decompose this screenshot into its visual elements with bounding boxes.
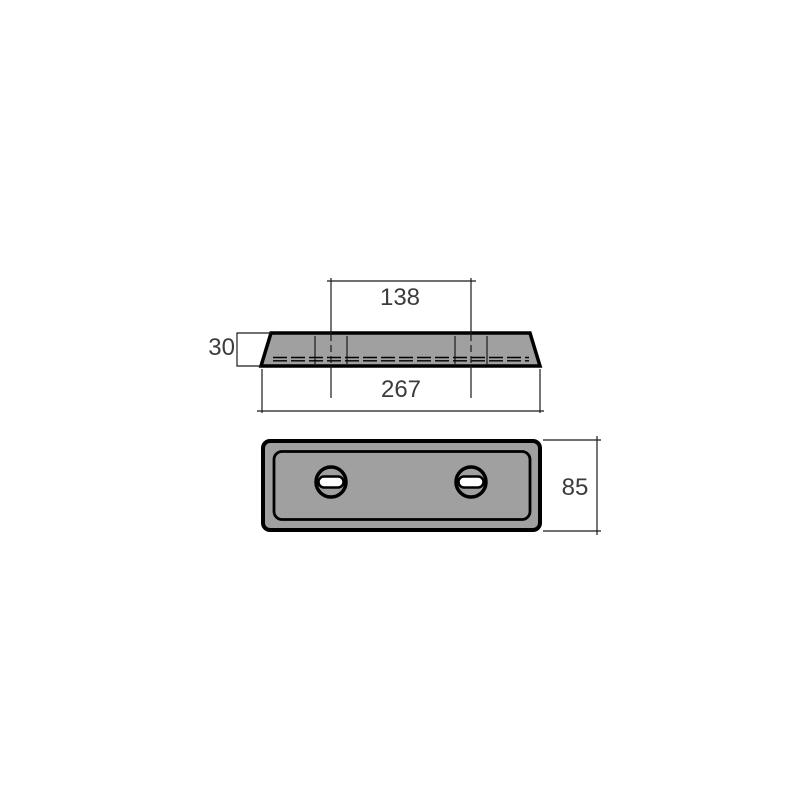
- mounting-slot-right: [459, 477, 484, 488]
- mounting-slot-left: [319, 477, 344, 488]
- drawing-canvas: 138 30 267 85: [0, 0, 800, 800]
- dimension-text-height: 85: [562, 474, 589, 501]
- technical-drawing: 138 30 267 85: [0, 0, 800, 800]
- dimension-text-slot-spacing: 138: [380, 284, 420, 311]
- front-view: 85: [263, 436, 601, 535]
- side-view: 138 30 267: [208, 278, 544, 413]
- dimension-text-thickness: 30: [208, 334, 235, 361]
- plate-outline: [263, 441, 540, 530]
- dimension-text-overall-length: 267: [381, 376, 421, 403]
